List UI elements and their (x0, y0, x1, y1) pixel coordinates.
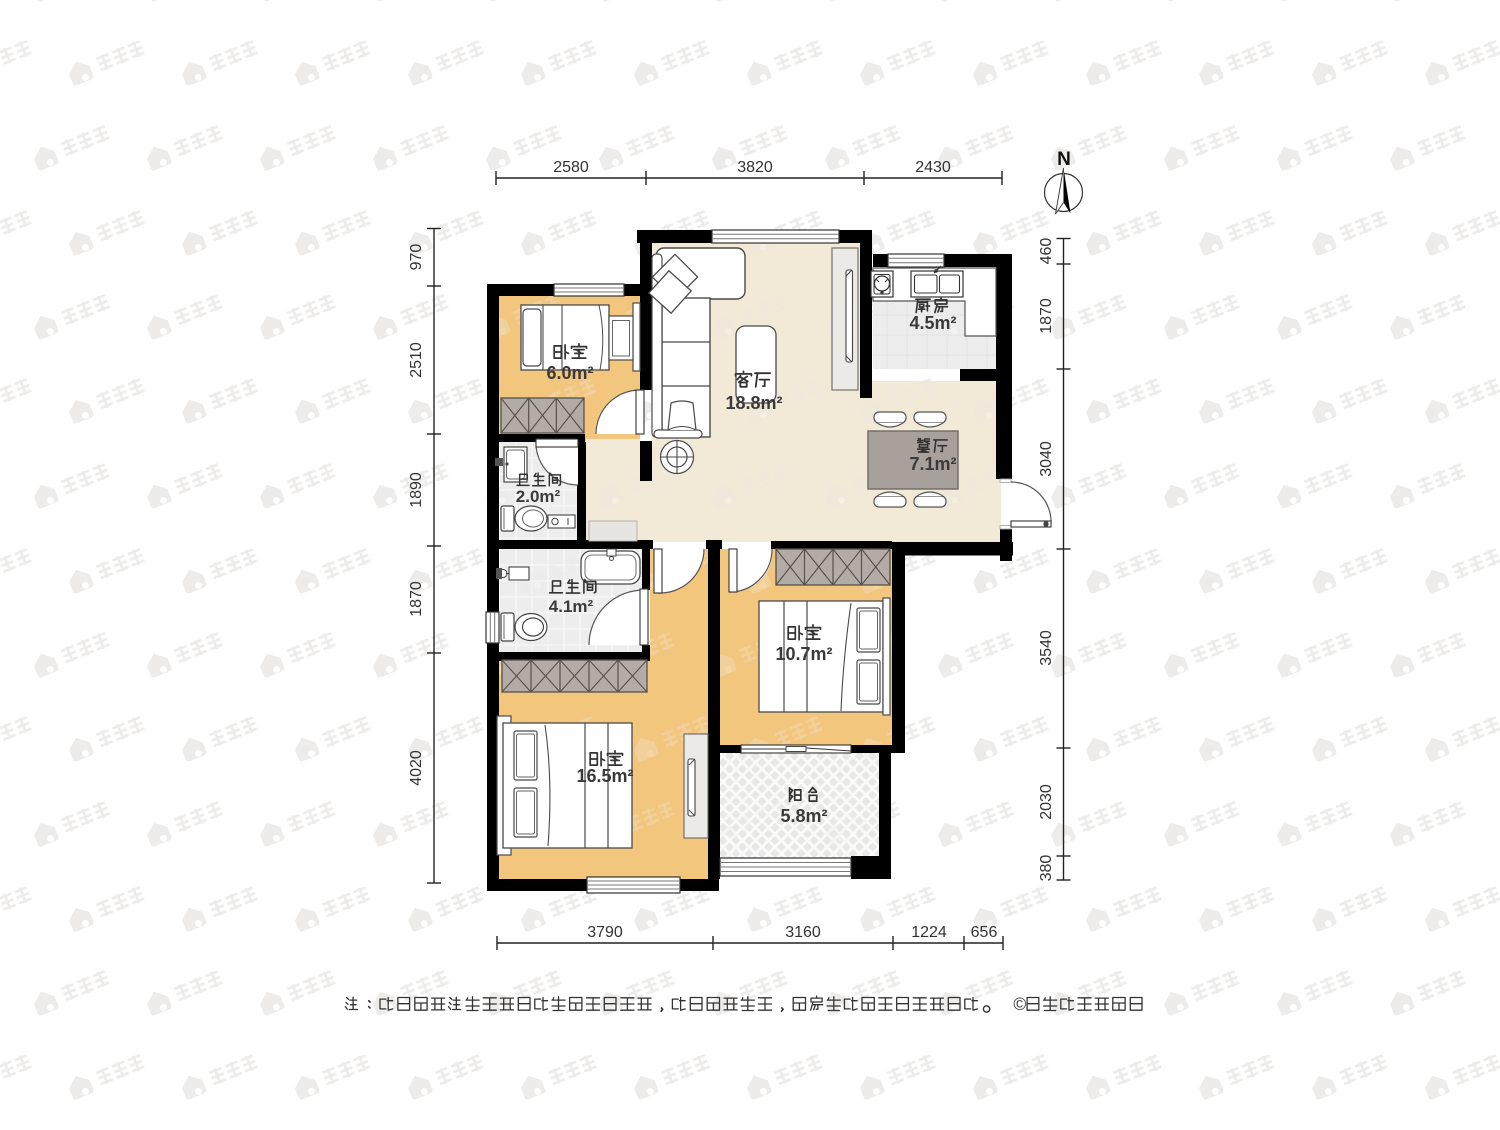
svg-text:3820: 3820 (737, 159, 773, 176)
svg-text:4.1m²: 4.1m² (549, 597, 594, 616)
svg-text:7.1m²: 7.1m² (909, 454, 956, 474)
svg-text:10.7m²: 10.7m² (775, 644, 832, 664)
svg-text:1224: 1224 (911, 924, 947, 941)
svg-text:©: © (1013, 994, 1026, 1014)
svg-text:2430: 2430 (915, 159, 951, 176)
svg-text:1870: 1870 (1038, 298, 1055, 334)
svg-text:460: 460 (1038, 238, 1055, 265)
svg-text:3040: 3040 (1038, 441, 1055, 477)
svg-text:2580: 2580 (553, 159, 589, 176)
svg-text:3540: 3540 (1038, 630, 1055, 666)
svg-text:5.8m²: 5.8m² (780, 806, 827, 826)
svg-text:1870: 1870 (408, 581, 425, 617)
svg-text:970: 970 (408, 244, 425, 271)
svg-text:6.0m²: 6.0m² (546, 363, 593, 383)
svg-text:2510: 2510 (408, 342, 425, 378)
svg-text:N: N (1057, 149, 1071, 170)
svg-text:4020: 4020 (408, 750, 425, 786)
svg-text:3160: 3160 (785, 924, 821, 941)
svg-text:2030: 2030 (1038, 784, 1055, 820)
svg-text:18.8m²: 18.8m² (725, 393, 782, 413)
svg-text:380: 380 (1038, 855, 1055, 882)
svg-text:656: 656 (971, 924, 998, 941)
svg-text:16.5m²: 16.5m² (576, 766, 633, 786)
svg-text:3790: 3790 (587, 924, 623, 941)
svg-text:1890: 1890 (408, 472, 425, 508)
svg-text:4.5m²: 4.5m² (909, 313, 956, 333)
svg-text:2.0m²: 2.0m² (516, 487, 561, 506)
